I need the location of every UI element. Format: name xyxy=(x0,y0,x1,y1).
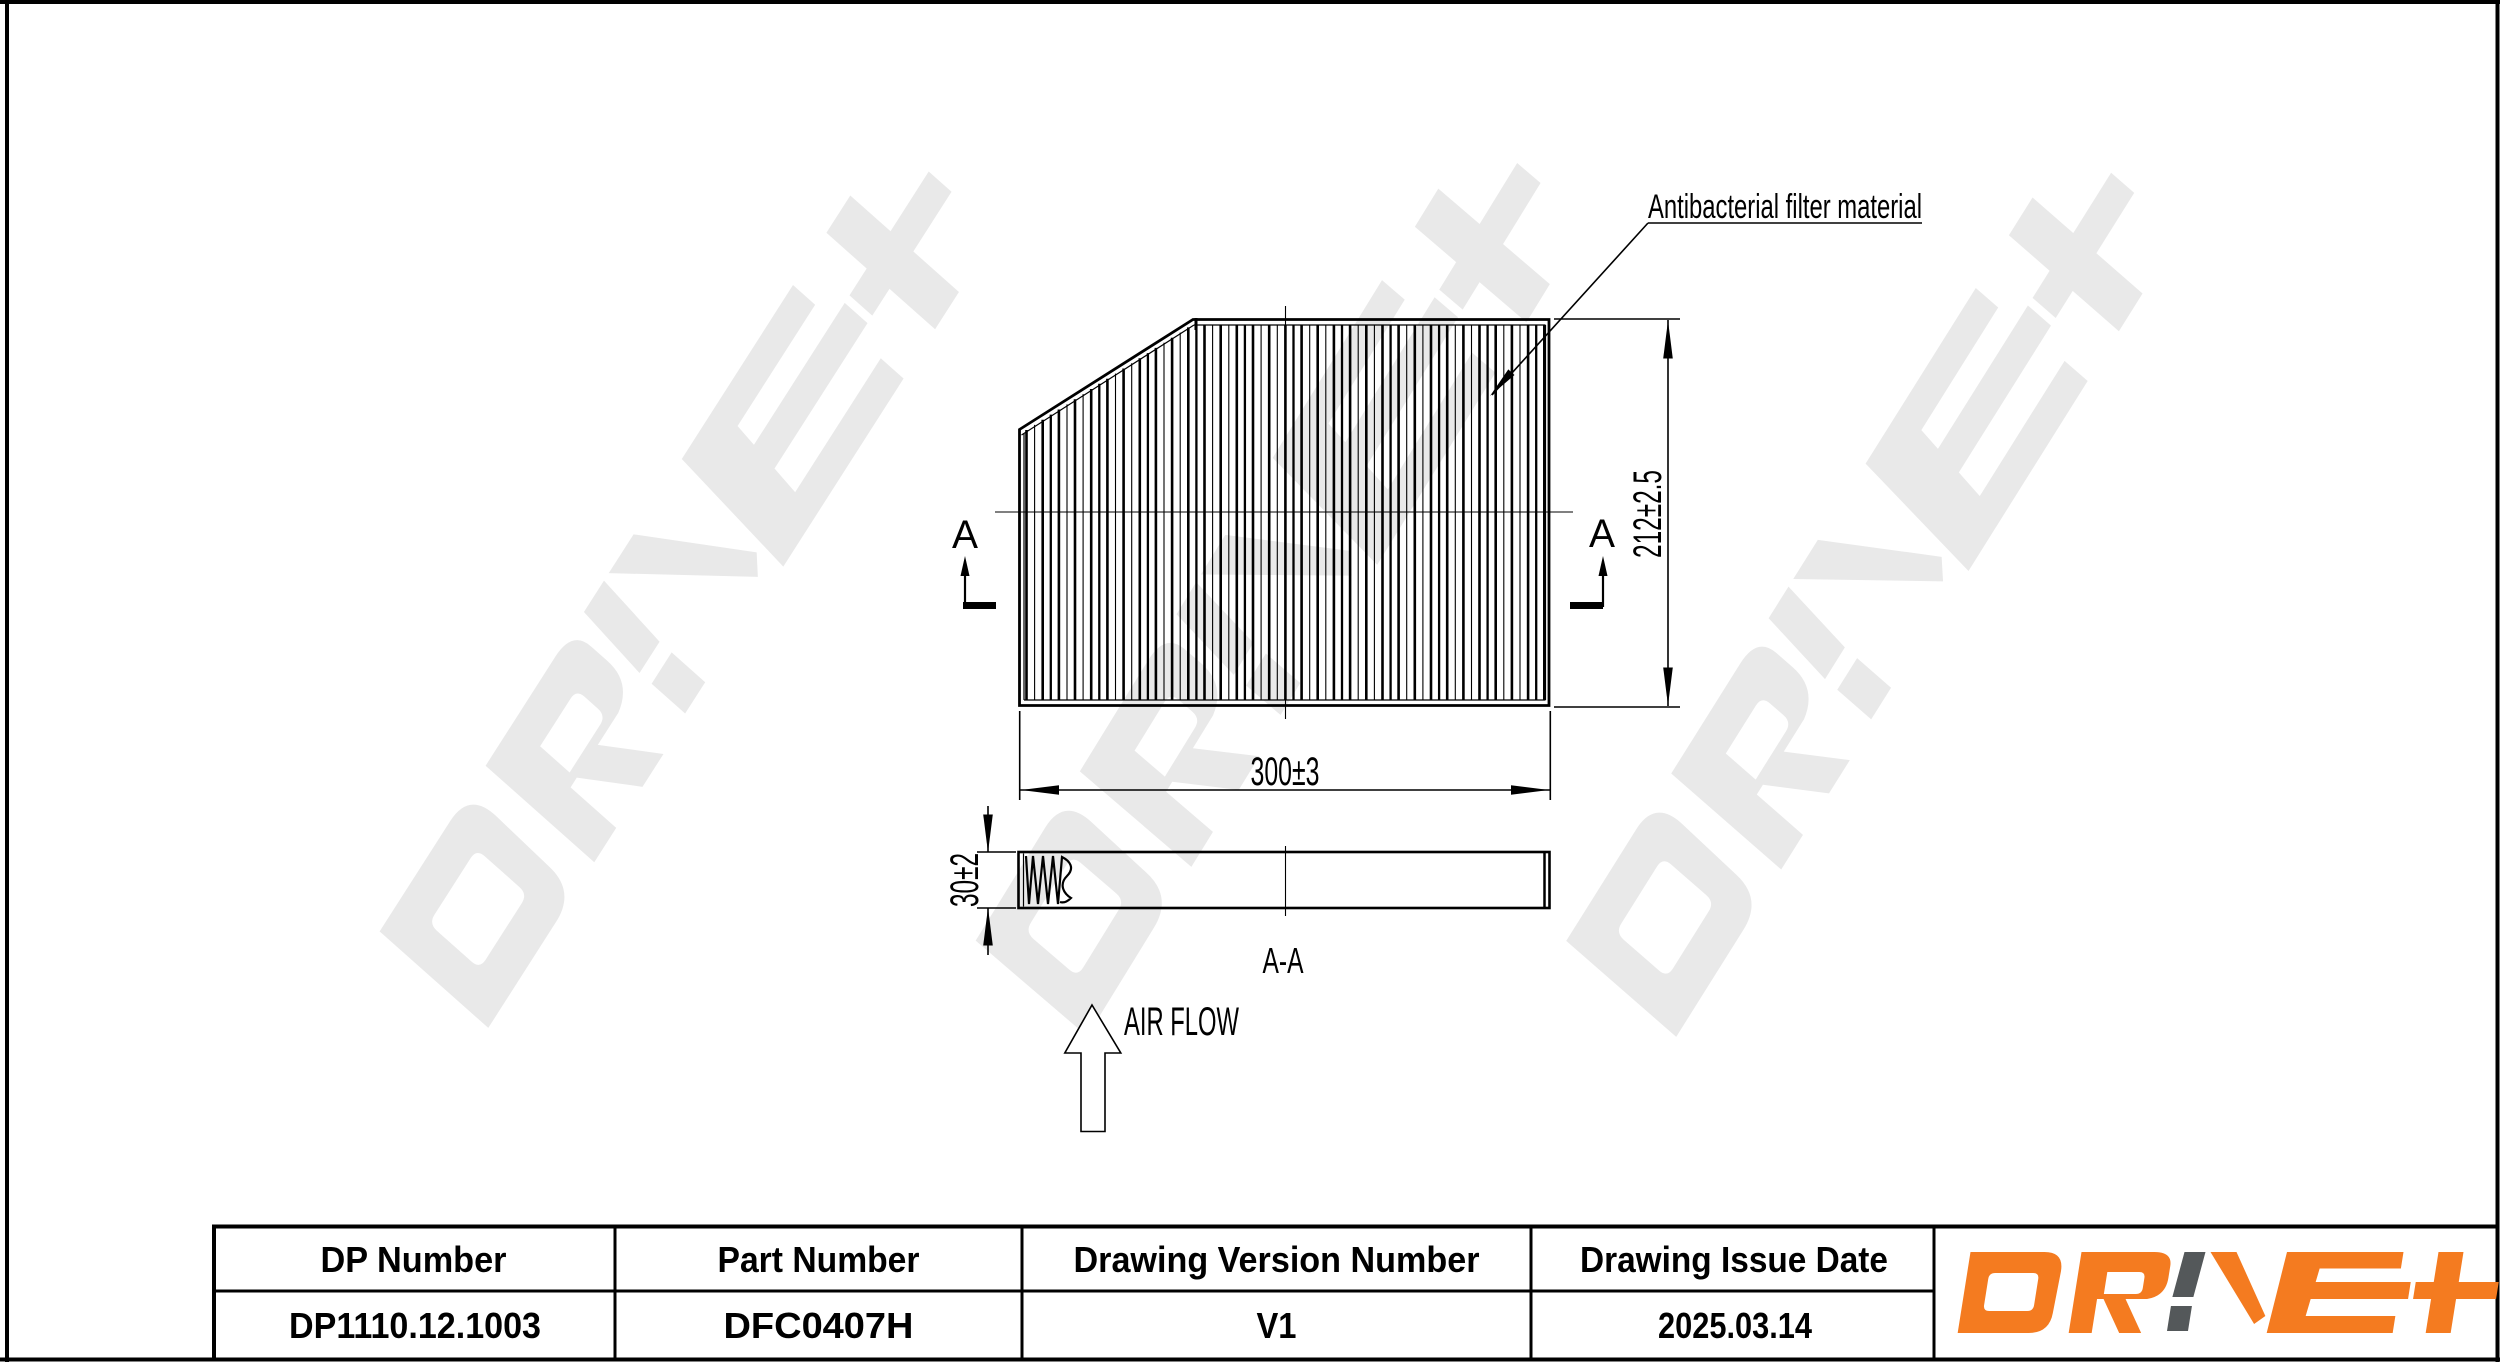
svg-text:DP1110.12.1003: DP1110.12.1003 xyxy=(289,1305,541,1346)
svg-text:DFC0407H: DFC0407H xyxy=(724,1305,914,1346)
svg-text:Antibacterial filter material: Antibacterial filter material xyxy=(1648,188,1922,226)
svg-text:Part Number: Part Number xyxy=(718,1239,920,1280)
svg-text:Drawing Issue Date: Drawing Issue Date xyxy=(1580,1239,1888,1280)
svg-text:30±2: 30±2 xyxy=(943,853,987,907)
svg-text:A: A xyxy=(952,513,978,557)
svg-text:DP Number: DP Number xyxy=(321,1239,507,1280)
svg-text:2025.03.14: 2025.03.14 xyxy=(1658,1305,1812,1346)
svg-text:Drawing Version Number: Drawing Version Number xyxy=(1074,1239,1480,1280)
svg-text:AIR FLOW: AIR FLOW xyxy=(1124,1000,1239,1044)
svg-text:212±2.5: 212±2.5 xyxy=(1626,470,1670,558)
svg-text:A-A: A-A xyxy=(1263,940,1304,981)
svg-text:A: A xyxy=(1589,512,1615,556)
svg-text:300±3: 300±3 xyxy=(1251,750,1320,794)
svg-text:V1: V1 xyxy=(1257,1305,1297,1346)
